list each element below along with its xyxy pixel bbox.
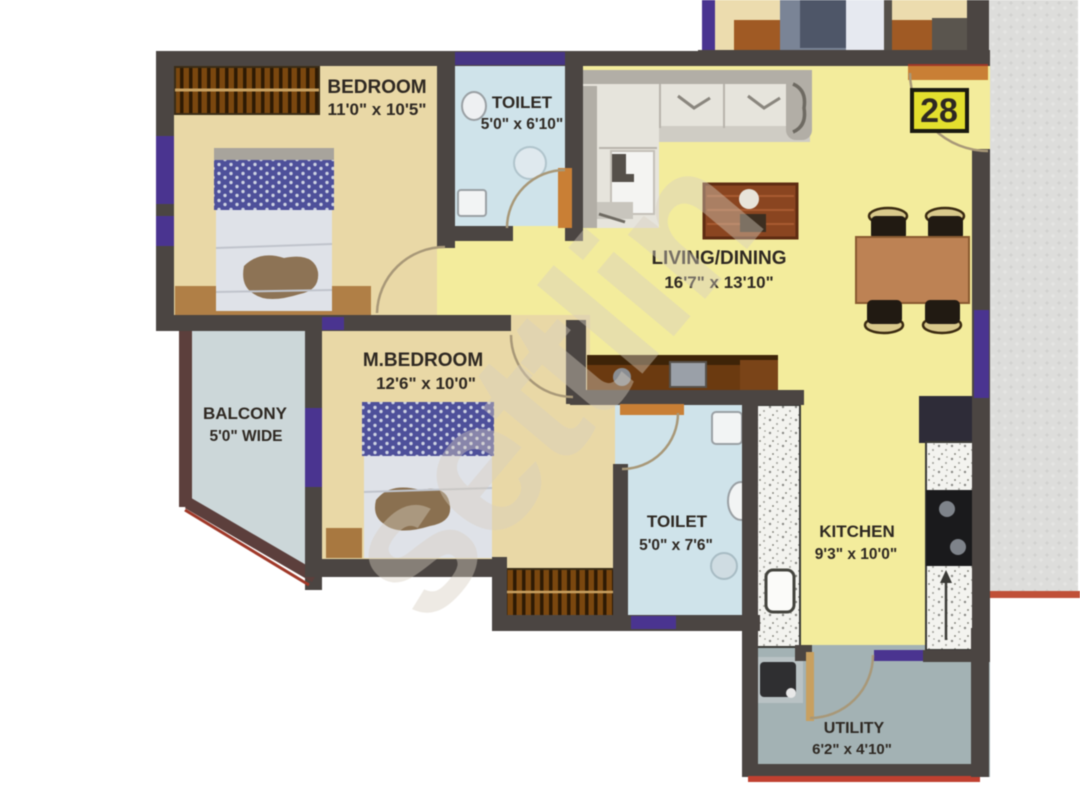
svg-text:5'0" WIDE: 5'0" WIDE	[209, 428, 282, 445]
svg-text:TOILET: TOILET	[492, 93, 553, 112]
svg-text:KITCHEN: KITCHEN	[819, 522, 895, 541]
svg-text:9'3" x 10'0": 9'3" x 10'0"	[815, 546, 897, 563]
svg-text:TOILET: TOILET	[647, 512, 708, 531]
svg-text:11'0" x 10'5": 11'0" x 10'5"	[328, 100, 427, 119]
svg-text:BALCONY: BALCONY	[203, 404, 288, 423]
svg-text:UTILITY: UTILITY	[824, 720, 885, 737]
svg-text:6'2" x 4'10": 6'2" x 4'10"	[812, 741, 892, 758]
svg-text:28: 28	[920, 92, 958, 130]
svg-text:BEDROOM: BEDROOM	[327, 77, 426, 98]
svg-text:5'0" x 7'6": 5'0" x 7'6"	[639, 537, 713, 554]
svg-text:5'0" x 6'10": 5'0" x 6'10"	[481, 116, 563, 133]
